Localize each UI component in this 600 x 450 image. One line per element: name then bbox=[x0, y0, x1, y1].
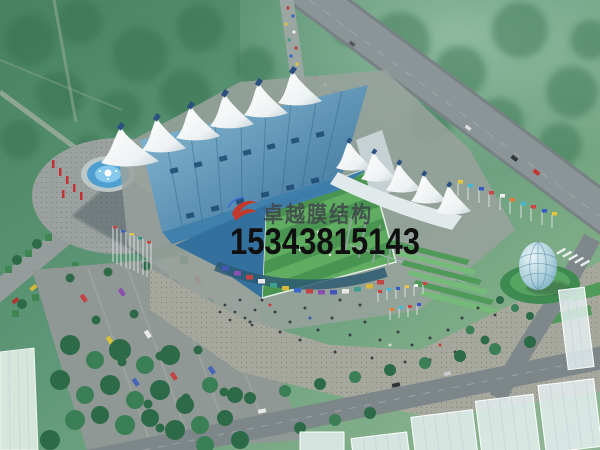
west-building bbox=[0, 348, 38, 450]
fountain-jet bbox=[105, 170, 112, 177]
stadium-rendering: 卓越膜结构 15343815143 bbox=[0, 0, 600, 450]
rendering-svg: 卓越膜结构 15343815143 bbox=[0, 0, 600, 450]
phone-number: 15343815143 bbox=[230, 221, 420, 262]
